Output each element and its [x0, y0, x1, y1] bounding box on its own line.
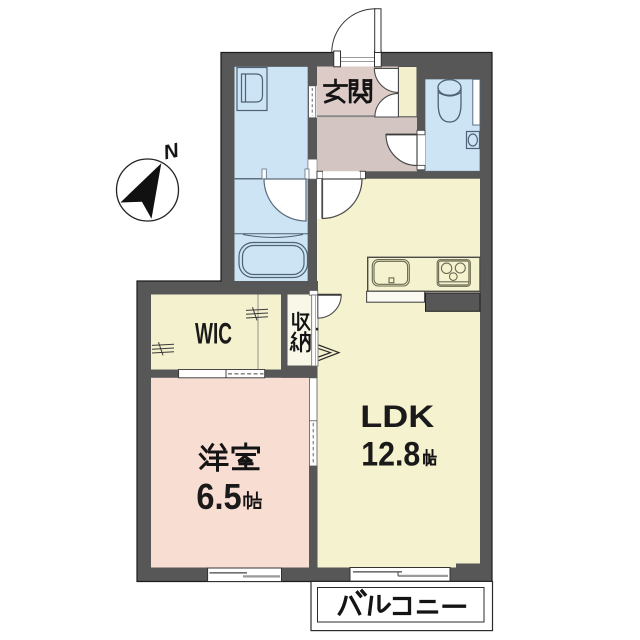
- svg-text:6.5: 6.5: [196, 476, 241, 517]
- svg-text:LDK: LDK: [360, 398, 434, 434]
- svg-text:WIC: WIC: [195, 317, 232, 350]
- svg-text:12.8: 12.8: [361, 435, 420, 473]
